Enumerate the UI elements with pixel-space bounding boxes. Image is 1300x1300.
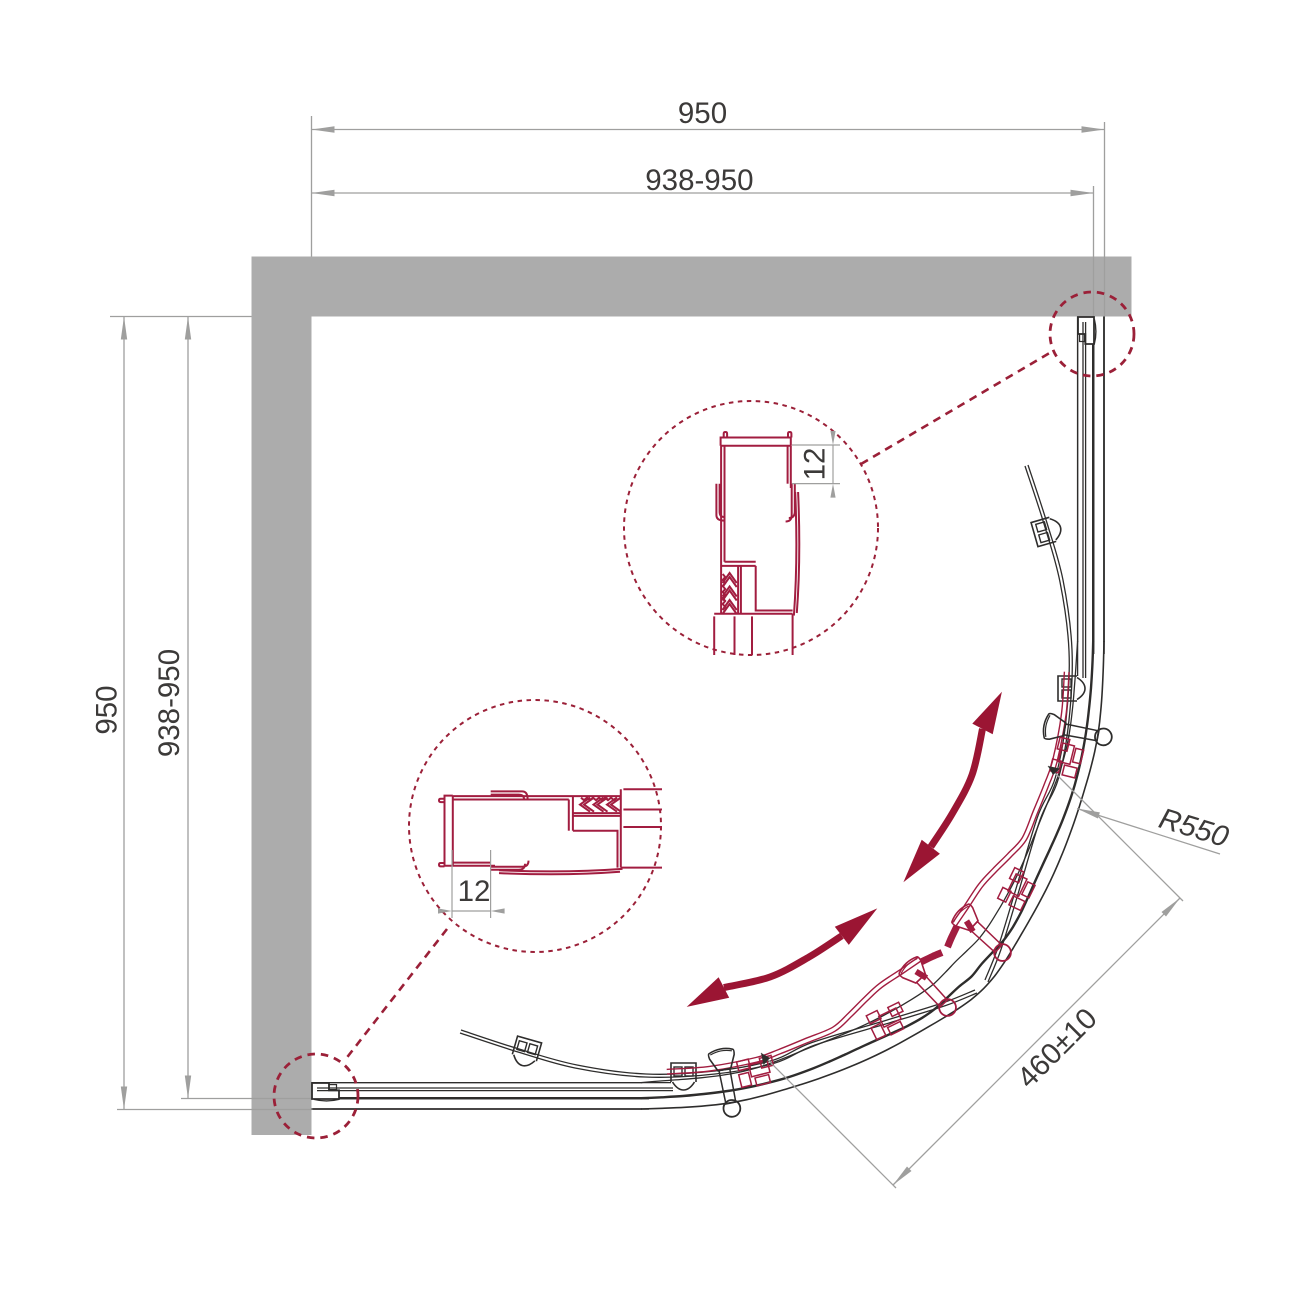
svg-text:12: 12 <box>458 875 491 908</box>
svg-text:950: 950 <box>678 97 727 130</box>
svg-text:938-950: 938-950 <box>645 164 753 197</box>
svg-text:950: 950 <box>90 685 123 734</box>
svg-text:938-950: 938-950 <box>153 649 186 757</box>
svg-text:12: 12 <box>799 448 832 481</box>
